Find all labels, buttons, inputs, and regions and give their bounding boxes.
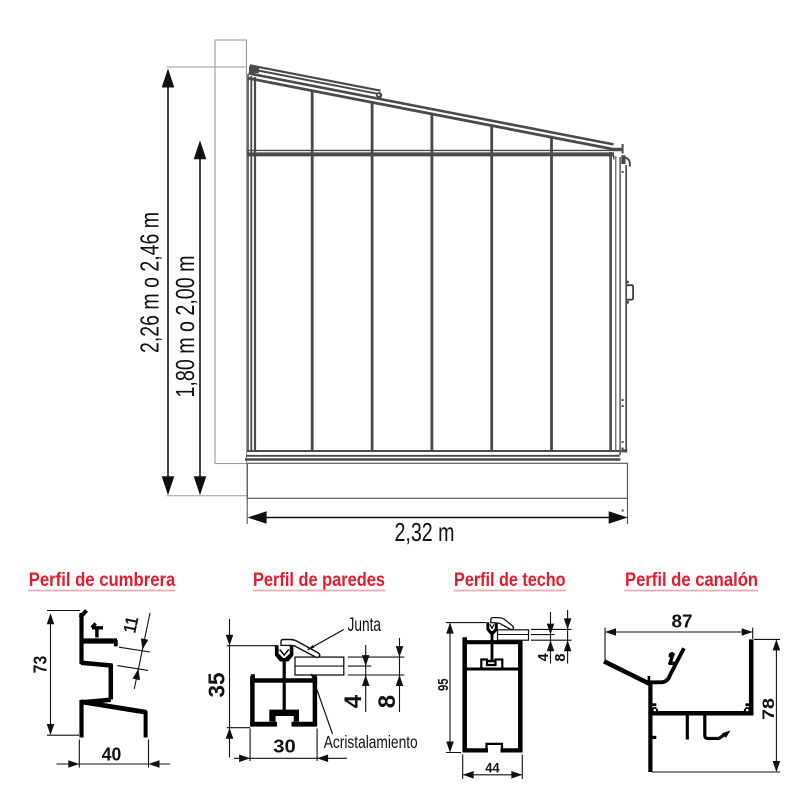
svg-text:Junta: Junta bbox=[348, 615, 382, 636]
svg-text:30: 30 bbox=[273, 736, 296, 757]
svg-text:Acristalamiento: Acristalamiento bbox=[324, 732, 418, 752]
svg-text:95: 95 bbox=[435, 678, 452, 691]
svg-text:1,80 m o 2,00 m: 1,80 m o 2,00 m bbox=[170, 256, 200, 398]
svg-text:44: 44 bbox=[485, 760, 500, 776]
svg-text:Perfil de cumbrera: Perfil de cumbrera bbox=[29, 570, 176, 591]
svg-text:40: 40 bbox=[102, 744, 122, 764]
svg-text:2,32 m: 2,32 m bbox=[395, 517, 455, 547]
svg-text:Perfil de canalón: Perfil de canalón bbox=[625, 570, 758, 591]
svg-text:73: 73 bbox=[31, 656, 51, 674]
svg-text:8: 8 bbox=[374, 695, 401, 708]
svg-text:Perfil de techo: Perfil de techo bbox=[454, 570, 566, 591]
svg-text:87: 87 bbox=[672, 611, 693, 631]
svg-text:4: 4 bbox=[536, 653, 552, 661]
svg-text:Perfil de paredes: Perfil de paredes bbox=[253, 570, 385, 591]
svg-text:8: 8 bbox=[553, 654, 569, 662]
svg-text:35: 35 bbox=[204, 672, 230, 697]
svg-text:4: 4 bbox=[340, 694, 367, 708]
svg-text:78: 78 bbox=[759, 698, 778, 720]
svg-text:2,26 m o 2,46 m: 2,26 m o 2,46 m bbox=[135, 212, 165, 353]
